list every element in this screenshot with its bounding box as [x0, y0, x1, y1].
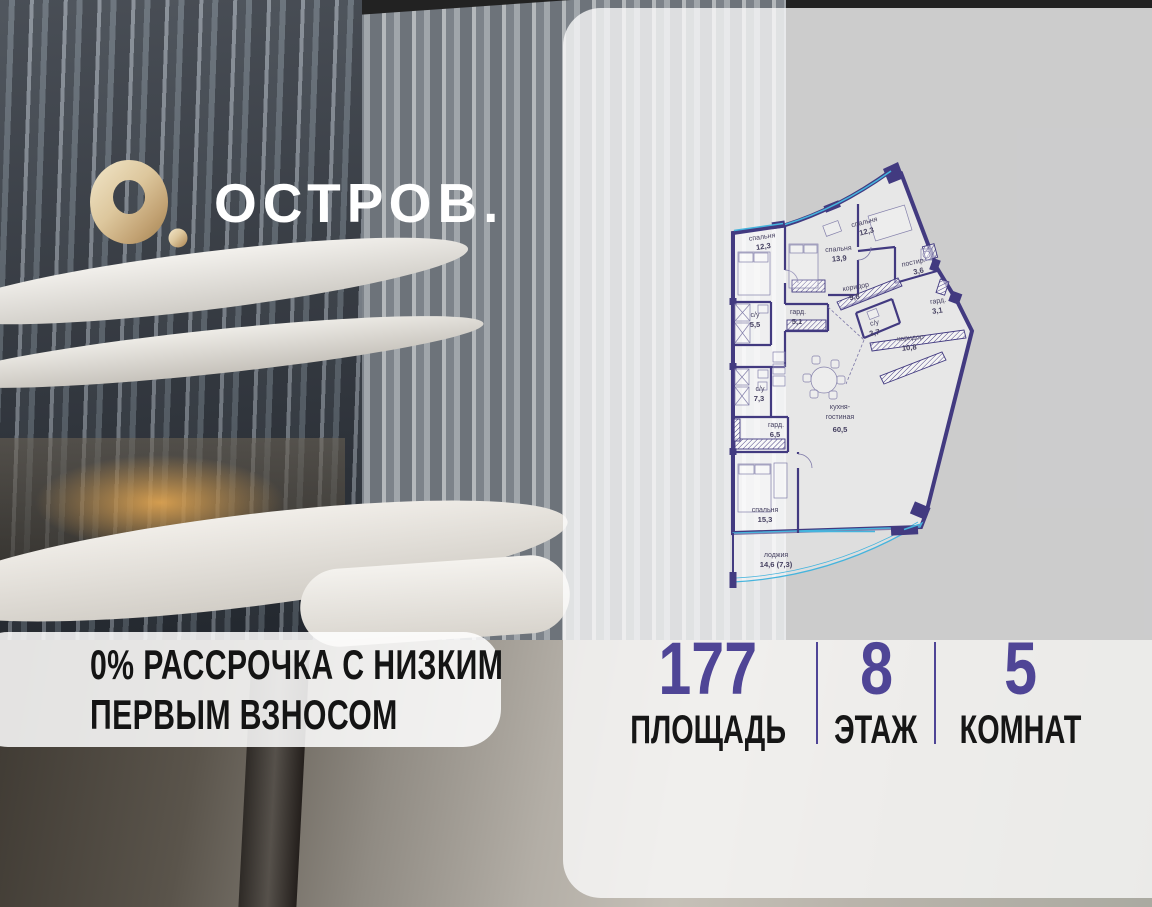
svg-text:спальня: спальня	[752, 507, 779, 514]
svg-text:кухня-: кухня-	[830, 404, 851, 411]
floor-label: ЭТАЖ	[835, 710, 918, 750]
logo-dot	[169, 229, 188, 248]
svg-text:с/у: с/у	[756, 386, 765, 393]
svg-text:7,3: 7,3	[754, 394, 765, 403]
area-label: ПЛОЩАДЬ	[630, 710, 786, 750]
area-value: 177	[659, 636, 758, 701]
svg-text:6,5: 6,5	[770, 430, 781, 439]
stat-rooms: 5 КОМНАТ	[936, 636, 1105, 750]
promo-banner: 0% РАССРОЧКА С НИЗКИМ ПЕРВЫМ ВЗНОСОМ	[0, 632, 501, 747]
svg-text:гард.: гард.	[790, 309, 806, 316]
svg-text:9,8: 9,8	[848, 291, 860, 302]
brand-name: ОСТРОВ.	[214, 176, 504, 231]
floor-value: 8	[860, 636, 893, 701]
stat-area: 177 ПЛОЩАДЬ	[600, 636, 816, 750]
svg-text:гард.: гард.	[768, 422, 784, 429]
rooms-value: 5	[1004, 636, 1037, 701]
svg-text:с/у: с/у	[751, 312, 760, 319]
svg-text:13,9: 13,9	[831, 253, 847, 263]
promo-line2: ПЕРВЫМ ВЗНОСОМ	[90, 690, 398, 740]
brand-logo-icon	[90, 160, 190, 252]
svg-text:10,8: 10,8	[901, 342, 917, 352]
svg-text:14,6 (7,3): 14,6 (7,3)	[760, 560, 793, 569]
svg-text:гостиная: гостиная	[826, 414, 855, 421]
promo-line1: 0% РАССРОЧКА С НИЗКИМ	[90, 640, 503, 690]
promo-poster: ОСТРОВ.	[0, 0, 1152, 907]
brand-logo: ОСТРОВ.	[90, 160, 504, 252]
svg-text:5,5: 5,5	[750, 320, 761, 329]
floor-plan: спальня12,3 спальня13,9 спальня12,3 пост…	[688, 152, 1000, 596]
rooms-label: КОМНАТ	[960, 710, 1082, 750]
svg-text:3,1: 3,1	[932, 305, 944, 315]
svg-text:60,5: 60,5	[833, 425, 849, 434]
apartment-stats: 177 ПЛОЩАДЬ 8 ЭТАЖ 5 КОМНАТ	[600, 636, 1105, 750]
svg-text:5,1: 5,1	[792, 317, 803, 326]
svg-text:15,3: 15,3	[758, 515, 773, 524]
svg-text:лоджия: лоджия	[764, 552, 789, 559]
stat-floor: 8 ЭТАЖ	[818, 636, 934, 750]
